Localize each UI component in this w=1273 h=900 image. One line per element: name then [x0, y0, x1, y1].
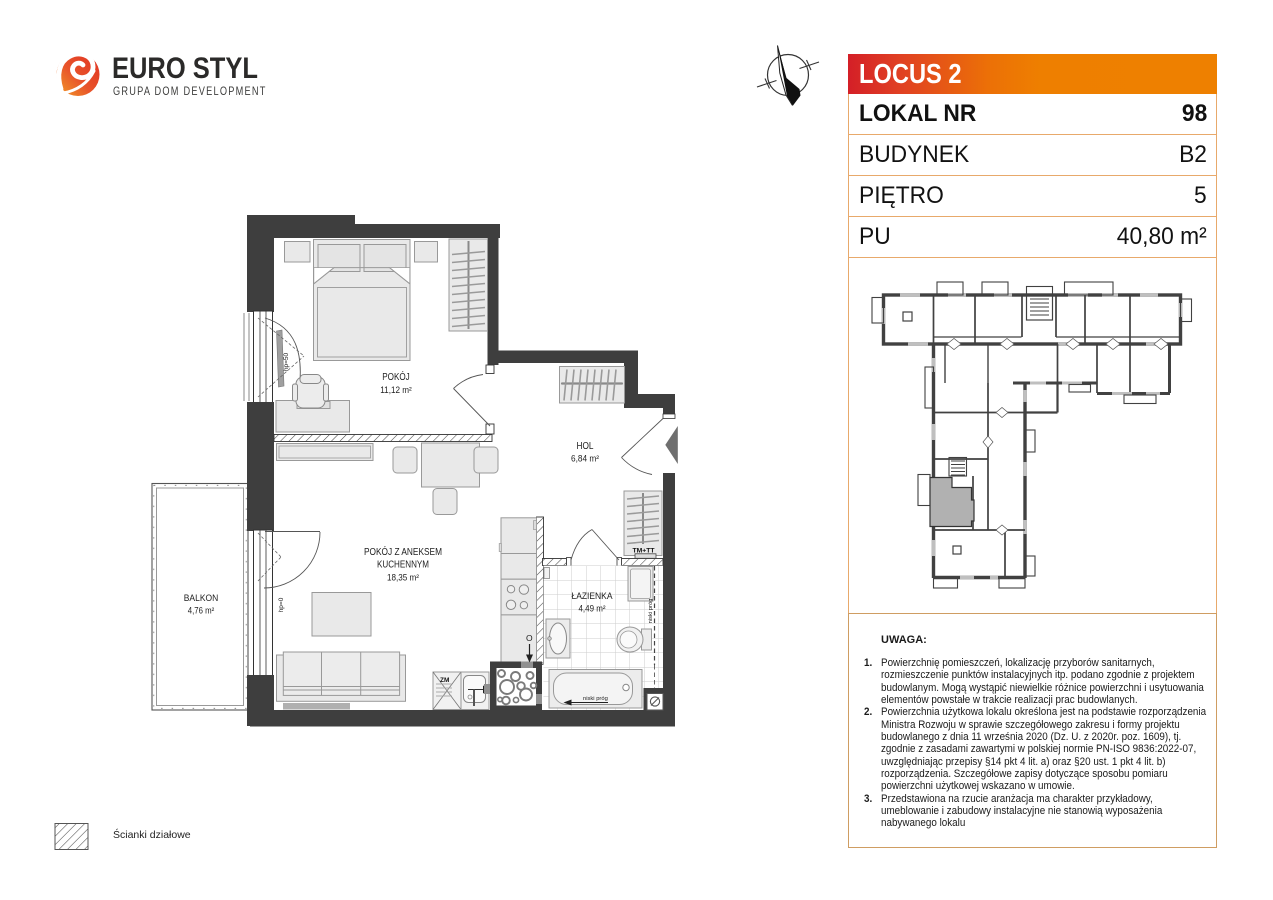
svg-text:HOL: HOL	[577, 441, 594, 452]
svg-text:ŁAZIENKA: ŁAZIENKA	[572, 591, 614, 602]
svg-text:niski próg: niski próg	[583, 696, 608, 702]
svg-text:11,12 m²: 11,12 m²	[380, 385, 412, 395]
svg-text:6,84 m²: 6,84 m²	[571, 454, 599, 464]
svg-text:BALKON: BALKON	[184, 593, 219, 604]
svg-text:hp=50: hp=50	[283, 352, 290, 371]
svg-text:niski próg: niski próg	[648, 599, 654, 624]
svg-text:18,35 m²: 18,35 m²	[387, 573, 419, 583]
svg-text:POKÓJ Z ANEKSEM: POKÓJ Z ANEKSEM	[364, 547, 442, 558]
svg-text:O: O	[526, 633, 533, 643]
svg-text:4,76 m²: 4,76 m²	[188, 606, 215, 616]
svg-text:4,49 m²: 4,49 m²	[579, 604, 606, 614]
svg-text:ZM: ZM	[440, 677, 449, 684]
svg-text:hp=0: hp=0	[278, 597, 285, 612]
svg-text:POKÓJ: POKÓJ	[382, 372, 410, 383]
svg-text:KUCHENNYM: KUCHENNYM	[377, 560, 429, 571]
